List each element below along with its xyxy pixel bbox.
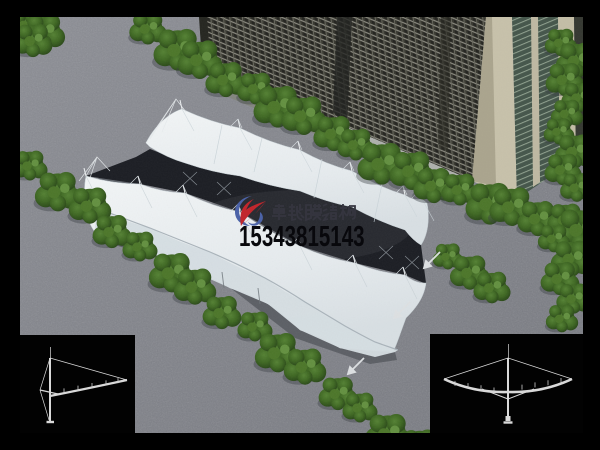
svg-text:15343815143: 15343815143: [239, 222, 365, 253]
